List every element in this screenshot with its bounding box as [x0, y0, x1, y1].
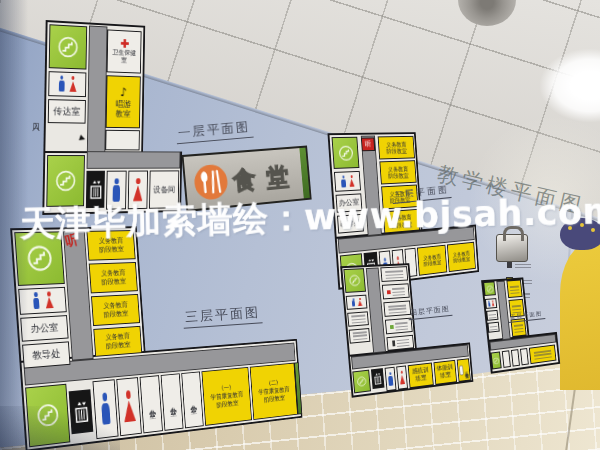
room-label: 义务教育阶段教室: [385, 141, 408, 155]
toilet-female: [396, 365, 408, 389]
small-room: [380, 266, 408, 282]
toilet-male: [385, 367, 397, 391]
female-figure-icon: [122, 390, 136, 423]
room-office-small: 办公室: [161, 373, 184, 431]
toilet-block: [334, 171, 361, 192]
banner-edge: [299, 148, 309, 199]
legend-icon: [507, 262, 512, 268]
small-room: [347, 311, 369, 326]
room-office-small: 办公室: [181, 371, 203, 428]
floor-plan-4: 感统训练室 体能训练室 言语教室: [340, 261, 473, 398]
male-figure-icon: [340, 175, 346, 187]
corridor-mark-block: 听: [361, 137, 375, 151]
room-label: 学前康复教育阶段教室: [258, 386, 290, 404]
toilet-block: [48, 71, 86, 97]
toilet-block: [485, 298, 497, 309]
listen-mark: 听: [365, 140, 372, 148]
food-icon: [193, 164, 229, 201]
room-label: 卫生保健室: [112, 50, 136, 66]
stairwell-block: [352, 370, 371, 394]
stairs-icon: [485, 284, 494, 294]
small-room: [386, 335, 414, 351]
cartoon-character-body: [560, 242, 600, 390]
plan1-corridor-vertical: [87, 25, 108, 153]
small-room: [349, 328, 371, 344]
room-label: 办公室: [30, 322, 59, 335]
room-label: 教导处: [32, 348, 61, 362]
music-note-icon: ♪: [120, 85, 127, 99]
room-sensory: 感统训练室: [408, 362, 434, 388]
elevator-icon: [88, 178, 102, 202]
entrance-label: 入口: [29, 116, 40, 118]
legend-row: [507, 262, 531, 268]
photo-of-wall-mural: 教学楼平面图 传达室 卫生保健室 ♪ 唱游教室: [0, 0, 600, 450]
room-label: 唱游教室: [114, 99, 132, 119]
female-figure-icon: [349, 175, 355, 187]
empty-room: [105, 130, 140, 151]
room-label: 办公室: [168, 400, 176, 404]
door-icon: [459, 365, 464, 377]
room-label: 办公室: [189, 398, 197, 402]
small-room: [487, 322, 499, 333]
elevator-block: [371, 368, 385, 389]
stairwell-block: [483, 281, 496, 296]
classroom-block: 义务教育阶段教室: [93, 326, 142, 357]
room-label: 义务教育阶段教室: [101, 301, 130, 318]
wall-lock-box: [496, 234, 528, 262]
female-figure-icon: [44, 291, 54, 309]
female-figure-icon: [491, 300, 494, 306]
red-mark-icon: [387, 290, 391, 294]
red-cross-icon: [119, 38, 129, 49]
male-figure-icon: [387, 371, 394, 386]
male-figure-icon: [31, 292, 41, 310]
classroom-block: 义务教育阶段教室: [91, 294, 140, 326]
room-label: 感统训练室: [411, 367, 430, 384]
stairs-icon: [56, 34, 81, 61]
classroom-block: [506, 280, 522, 299]
room-preschool-2: (二) 学前康复教育阶段教室: [250, 363, 298, 420]
small-room: [486, 310, 498, 321]
classroom-block: 义务教育阶段教室: [379, 160, 416, 184]
dark-mark-icon: [392, 340, 395, 346]
room-label: 设备间: [153, 185, 175, 195]
room-preschool-1: (一) 学前康复教育阶段教室: [201, 367, 251, 426]
stairs-icon: [356, 375, 368, 388]
female-figure-icon: [399, 370, 406, 385]
room-label: 办公室: [147, 402, 155, 406]
room-reception: 传达室: [48, 99, 86, 124]
stairwell-block: [343, 268, 366, 293]
stairwell-block: [49, 24, 87, 69]
small-room: [502, 350, 511, 368]
toilet-block: [346, 295, 368, 310]
plan1-corridor-horizontal: [87, 151, 181, 169]
ceiling-speaker: [458, 0, 516, 26]
room-label: 学前康复教育阶段教室: [210, 391, 244, 409]
female-figure-icon: [69, 76, 77, 93]
floor-plan-5: [481, 276, 560, 374]
elevator-icon: [373, 371, 382, 386]
room-label: 体能训练室: [436, 364, 455, 380]
stairs-icon: [336, 143, 355, 162]
stairs-icon: [492, 356, 500, 365]
room-label: 言语教室: [464, 368, 469, 372]
room-label: 义务教育阶段教室: [387, 165, 410, 179]
toilet-female: [116, 377, 142, 436]
canteen-label: 食堂: [232, 160, 301, 198]
floor-plan-1: 传达室 卫生保健室 ♪ 唱游教室 设备间 入口 ▶: [42, 20, 187, 216]
stairs-icon: [53, 168, 78, 194]
stairwell-block: [491, 351, 502, 369]
female-figure-icon: [357, 297, 362, 306]
room-dean: 教导处: [22, 341, 70, 368]
classroom-block: 义务教育阶段教室: [89, 262, 138, 293]
room-speech: 言语教室: [457, 358, 471, 382]
room-health: 卫生保健室: [107, 29, 142, 73]
room-label: 义务教育阶段教室: [99, 269, 128, 286]
male-figure-icon: [58, 75, 66, 92]
stairwell-block: [332, 137, 360, 169]
small-room: [382, 283, 410, 299]
room-music: ♪ 唱游教室: [106, 75, 141, 128]
male-figure-icon: [351, 298, 356, 307]
green-mark-icon: [390, 324, 394, 328]
room-physical: 体能训练室: [433, 360, 457, 385]
stairs-icon: [348, 273, 362, 288]
room-office-small: 办公室: [140, 375, 163, 433]
classroom-block: 义务教育阶段教室: [378, 136, 415, 160]
floor1-label: 一层平面图: [175, 119, 253, 145]
small-room: [511, 349, 520, 367]
room-label: 义务教育阶段教室: [103, 332, 132, 350]
room-label: 传达室: [53, 106, 80, 118]
